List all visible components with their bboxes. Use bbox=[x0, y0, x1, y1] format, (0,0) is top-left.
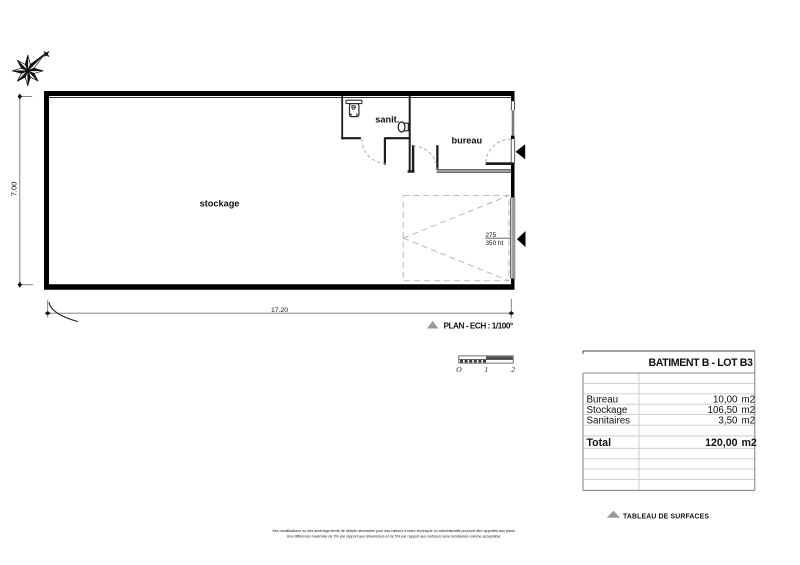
svg-text:350 ht: 350 ht bbox=[486, 240, 504, 247]
svg-text:106,50: 106,50 bbox=[708, 405, 739, 416]
svg-text:Une différence maximale de 3%: Une différence maximale de 3% par rappor… bbox=[287, 535, 502, 539]
svg-text:2: 2 bbox=[511, 365, 515, 374]
svg-text:3,50: 3,50 bbox=[718, 415, 738, 426]
svg-text:Sanitaires: Sanitaires bbox=[587, 415, 631, 426]
svg-text:Ses modifications ou des aména: Ses modifications ou des aménagements de… bbox=[272, 529, 516, 533]
svg-text:7.00: 7.00 bbox=[9, 182, 18, 196]
svg-text:120,00: 120,00 bbox=[705, 437, 738, 449]
svg-text:m2: m2 bbox=[742, 437, 757, 449]
svg-text:TABLEAU DE SURFACES: TABLEAU DE SURFACES bbox=[623, 513, 709, 520]
svg-text:17.20: 17.20 bbox=[271, 307, 288, 314]
svg-text:Stockage: Stockage bbox=[587, 405, 628, 416]
svg-text:O: O bbox=[456, 365, 462, 374]
svg-text:bureau: bureau bbox=[451, 135, 482, 145]
svg-text:10,00: 10,00 bbox=[713, 395, 738, 406]
svg-text:m2: m2 bbox=[742, 405, 756, 416]
svg-text:BATIMENT B - LOT B3: BATIMENT B - LOT B3 bbox=[648, 357, 753, 369]
svg-text:Bureau: Bureau bbox=[587, 395, 619, 406]
svg-text:275: 275 bbox=[486, 232, 497, 239]
svg-text:Total: Total bbox=[587, 437, 612, 449]
svg-text:sanit.: sanit. bbox=[375, 114, 399, 124]
svg-text:PLAN - ECH : 1/100°: PLAN - ECH : 1/100° bbox=[444, 322, 514, 331]
svg-text:m2: m2 bbox=[742, 395, 756, 406]
svg-text:stockage: stockage bbox=[200, 198, 240, 208]
svg-text:m2: m2 bbox=[742, 415, 756, 426]
svg-text:1: 1 bbox=[484, 365, 488, 374]
